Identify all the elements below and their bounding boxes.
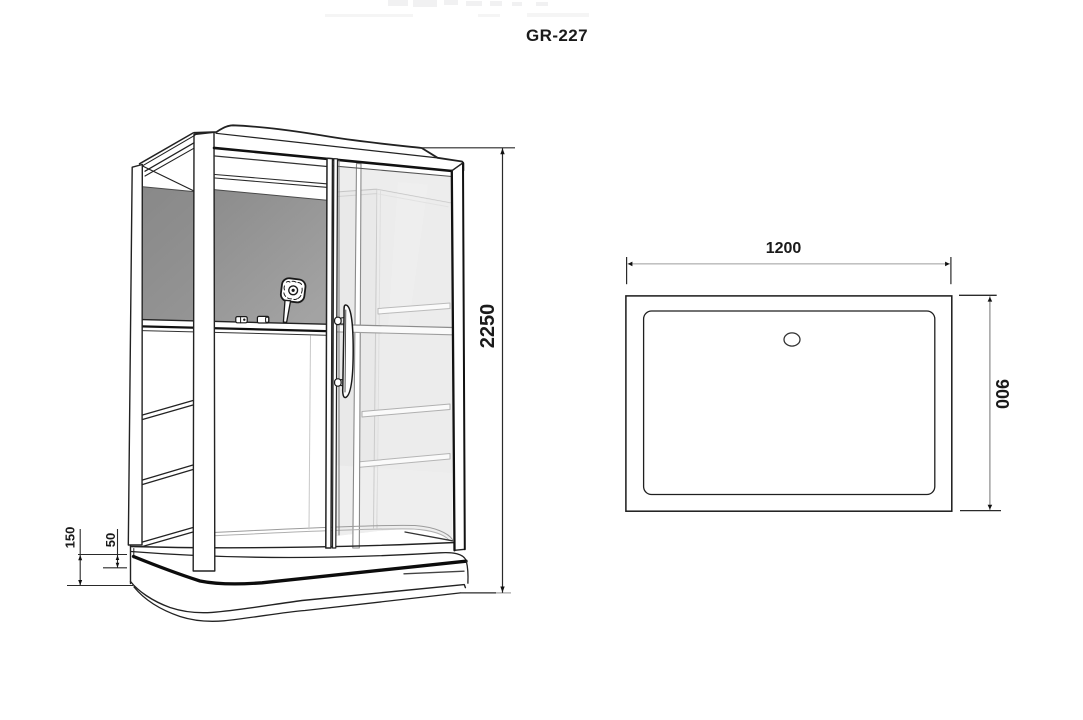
svg-text:900: 900 bbox=[992, 379, 1012, 409]
svg-text:GR-227: GR-227 bbox=[526, 26, 588, 45]
svg-text:2250: 2250 bbox=[477, 304, 499, 349]
svg-text:1200: 1200 bbox=[766, 240, 802, 257]
svg-text:150: 150 bbox=[63, 527, 78, 549]
svg-text:50: 50 bbox=[103, 533, 118, 547]
